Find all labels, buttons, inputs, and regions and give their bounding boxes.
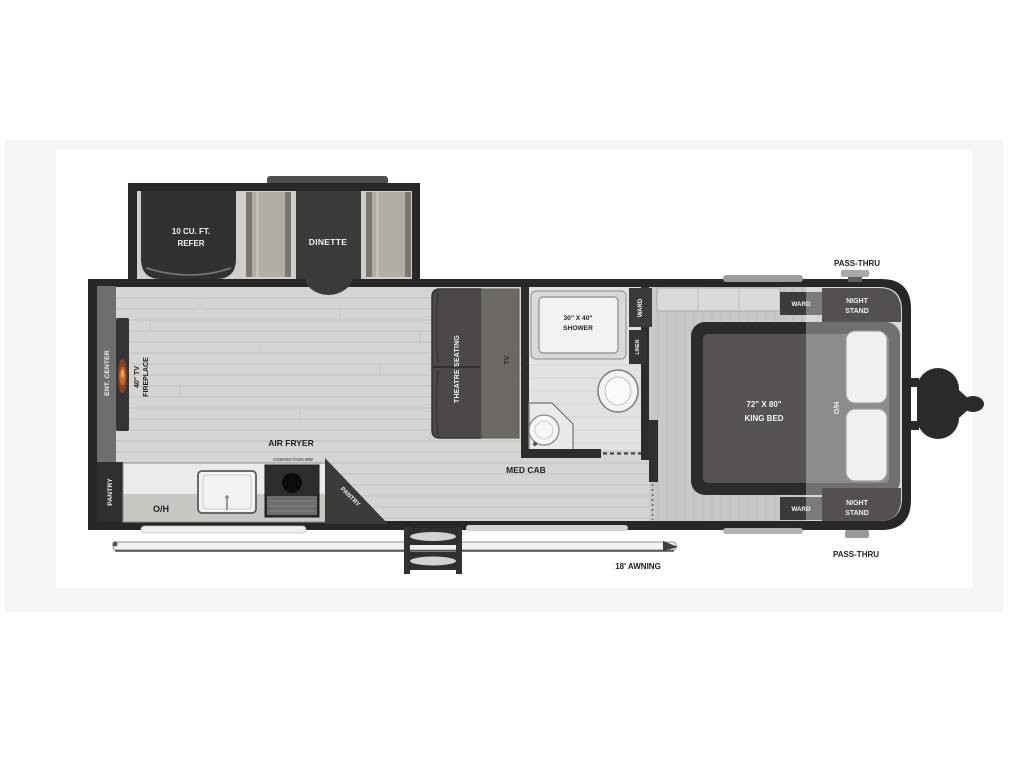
svg-text:REFER: REFER [177, 239, 204, 248]
svg-text:STAND: STAND [845, 510, 869, 517]
svg-text:TV: TV [504, 355, 511, 364]
svg-text:SHOWER: SHOWER [563, 325, 593, 332]
svg-text:PASS-THRU: PASS-THRU [833, 550, 879, 559]
svg-text:72" X 80": 72" X 80" [746, 400, 781, 409]
svg-text:10 CU. FT.: 10 CU. FT. [172, 227, 210, 236]
svg-text:CONVECTION MW: CONVECTION MW [273, 457, 314, 462]
svg-text:ENT. CENTER: ENT. CENTER [104, 350, 111, 395]
svg-text:O/H: O/H [153, 504, 169, 514]
svg-text:MED CAB: MED CAB [506, 465, 546, 475]
svg-text:KING BED: KING BED [744, 414, 783, 423]
svg-text:30" X 40": 30" X 40" [564, 315, 593, 322]
svg-text:THEATRE SEATING: THEATRE SEATING [454, 335, 461, 403]
svg-text:LINEN: LINEN [635, 339, 641, 354]
svg-text:O/H: O/H [834, 402, 841, 414]
svg-text:FIREPLACE: FIREPLACE [143, 357, 150, 397]
svg-text:STAND: STAND [845, 308, 869, 315]
svg-text:40" TV: 40" TV [134, 366, 141, 388]
svg-text:WARD: WARD [638, 298, 644, 317]
svg-text:18' AWNING: 18' AWNING [615, 562, 661, 571]
svg-text:NIGHT: NIGHT [846, 500, 869, 507]
svg-text:DINETTE: DINETTE [309, 237, 347, 247]
svg-text:PASS-THRU: PASS-THRU [834, 259, 880, 268]
svg-text:PANTRY: PANTRY [107, 478, 114, 506]
svg-text:AIR FRYER: AIR FRYER [268, 438, 314, 448]
svg-text:NIGHT: NIGHT [846, 298, 869, 305]
